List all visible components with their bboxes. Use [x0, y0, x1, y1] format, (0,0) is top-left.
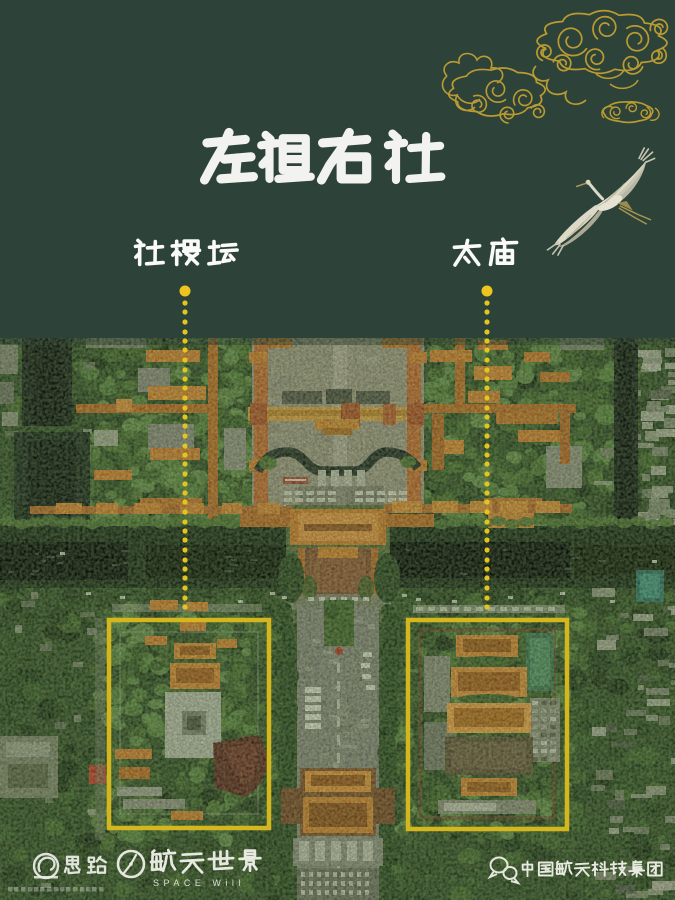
- svg-text:SPACE Will: SPACE Will: [153, 878, 245, 888]
